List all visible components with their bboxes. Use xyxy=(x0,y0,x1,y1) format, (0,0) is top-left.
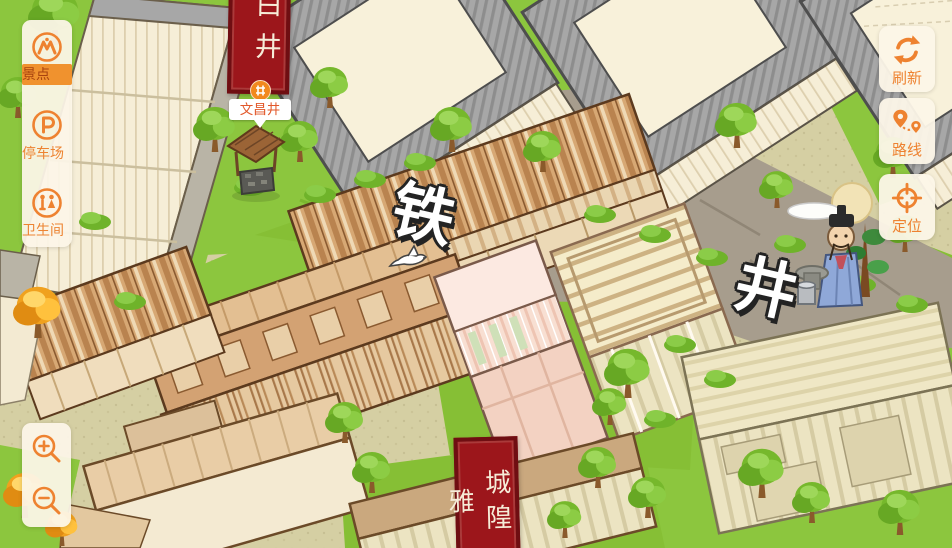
refresh-button[interactable]: 刷新 xyxy=(879,26,935,92)
zoom-in-magnifier-icon xyxy=(30,432,64,466)
left-menu-panel: 景点 停车场 卫生间 xyxy=(22,20,72,247)
menu-label-parking[interactable]: 停车场 xyxy=(22,143,72,163)
menu-label-scenic-spots[interactable]: 景点 xyxy=(22,64,72,85)
map-banner-bottom: 城隍雅 xyxy=(453,436,520,548)
locate-button[interactable]: 定位 xyxy=(879,174,935,240)
toilet-icon xyxy=(30,186,64,220)
menu-label-toilet[interactable]: 卫生间 xyxy=(22,220,72,240)
zoom-out-button[interactable] xyxy=(22,475,71,527)
banner-bottom-text: 城隍雅 xyxy=(458,440,517,548)
banner-top-text: 白井 xyxy=(231,0,287,74)
refresh-icon xyxy=(890,33,924,67)
menu-item-toilet[interactable] xyxy=(22,186,72,220)
route-button-label: 路线 xyxy=(892,139,922,160)
poi-pin-icon xyxy=(250,80,271,101)
route-button[interactable]: 路线 xyxy=(879,98,935,164)
locate-button-label: 定位 xyxy=(892,215,922,236)
zoom-controls-panel xyxy=(22,423,71,527)
locate-icon xyxy=(890,181,924,215)
poi-marker-pointer xyxy=(254,120,266,128)
scenic-map-app: 白井 城隍雅 铁 井 文昌井 景点 停车场 xyxy=(0,0,952,548)
parking-icon xyxy=(30,108,64,142)
zoom-in-button[interactable] xyxy=(22,423,71,475)
route-icon xyxy=(890,105,924,139)
poi-marker-label: 文昌井 xyxy=(229,99,291,120)
zoom-out-magnifier-icon xyxy=(30,484,64,518)
poi-marker-wenchangjing[interactable]: 文昌井 xyxy=(229,80,291,128)
scenic-spots-icon xyxy=(30,30,64,64)
menu-item-parking[interactable] xyxy=(22,108,72,142)
well-glyph-icon xyxy=(254,84,267,97)
refresh-button-label: 刷新 xyxy=(892,67,922,88)
menu-item-scenic-spots[interactable] xyxy=(22,30,72,64)
